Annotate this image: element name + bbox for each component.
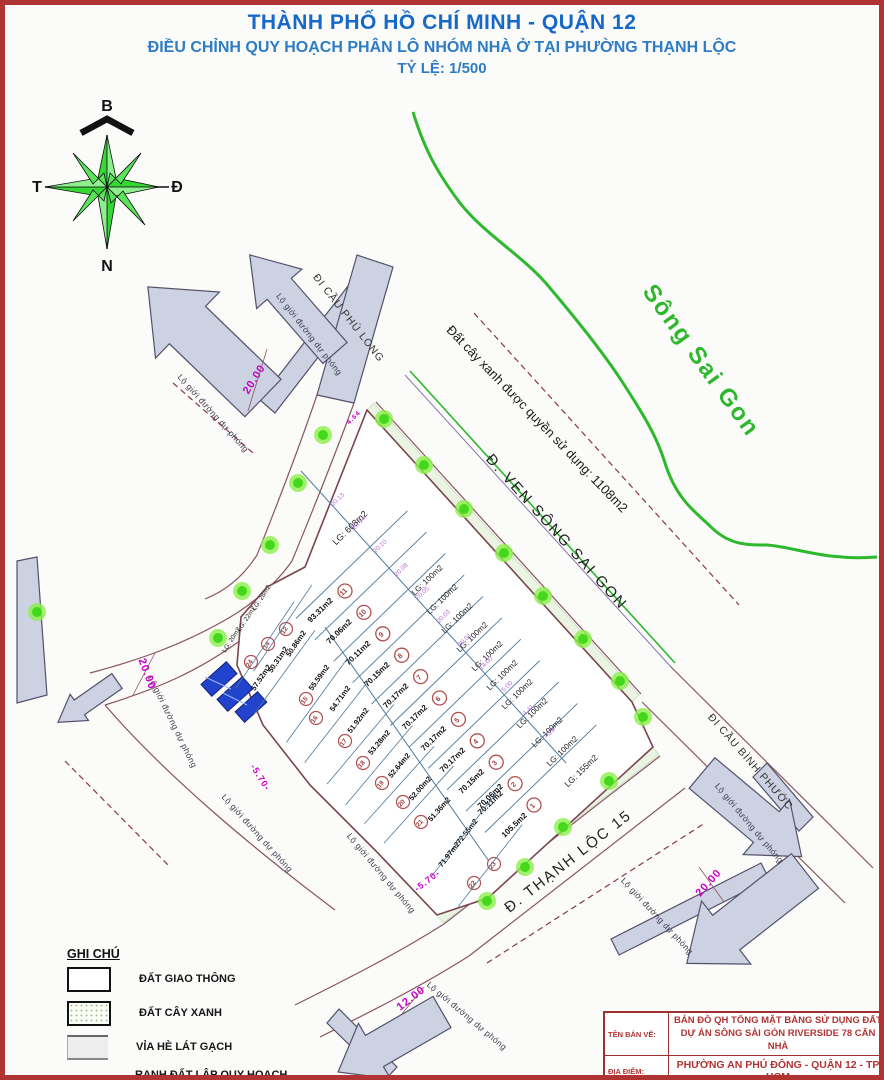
green-land-swatch <box>67 1001 111 1026</box>
compass-east-label: Đ <box>171 179 183 196</box>
tree-icon <box>293 478 303 488</box>
tree-icon <box>538 591 548 601</box>
legend-title: GHI CHÚ <box>67 947 287 961</box>
tree-icon <box>578 634 588 644</box>
legend-item-green: ĐẤT CÂY XANH <box>67 1001 287 1026</box>
title-block-row1: TÊN BẢN VẼ: BẢN ĐỒ QH TỔNG MẶT BẰNG SỬ D… <box>605 1013 884 1056</box>
header: THÀNH PHỐ HỒ CHÍ MINH - QUẬN 12 ĐIỀU CHỈ… <box>5 11 879 77</box>
legend-item-traffic: ĐẤT GIAO THÔNG <box>67 967 287 992</box>
tree-icon <box>520 862 530 872</box>
tree-icon <box>499 548 509 558</box>
sidewalk-swatch <box>67 1035 108 1060</box>
page-subtitle: ĐIỀU CHỈNH QUY HOẠCH PHÂN LÔ NHÓM NHÀ Ở … <box>5 39 879 57</box>
tree-icon <box>379 414 389 424</box>
compass-north-label: B <box>101 98 113 115</box>
tree-icon <box>237 586 247 596</box>
legend: GHI CHÚ ĐẤT GIAO THÔNG ĐẤT CÂY XANH VỈA … <box>67 947 287 1080</box>
tree-icon <box>32 607 42 617</box>
tree-icon <box>459 504 469 514</box>
river-line <box>413 112 877 558</box>
svg-text:-5.70-: -5.70- <box>248 762 272 792</box>
scale-label: TỶ LỆ: 1/500 <box>5 60 879 77</box>
page-title: THÀNH PHỐ HỒ CHÍ MINH - QUẬN 12 <box>5 11 879 35</box>
tree-icon <box>558 822 568 832</box>
plan-sheet: THÀNH PHỐ HỒ CHÍ MINH - QUẬN 12 ĐIỀU CHỈ… <box>0 0 884 1080</box>
tree-icon <box>482 896 492 906</box>
drawing-name-value: BẢN ĐỒ QH TỔNG MẶT BẰNG SỬ DỤNG ĐẤT DỰ Á… <box>669 1013 884 1055</box>
green-area-label: Đất cây xanh được quyền sử dụng: 1108m2 <box>444 322 631 515</box>
tree-icon <box>318 430 328 440</box>
traffic-land-swatch <box>67 967 111 992</box>
ranh-dashed-left2 <box>65 761 170 867</box>
compass-rose: B N T Đ <box>32 98 183 275</box>
legend-item-sidewalk: VỈA HÈ LÁT GẠCH <box>67 1035 287 1060</box>
tree-icon <box>265 540 275 550</box>
plan-map: B N T Đ Sông Sai Gon Đất cây xanh được q… <box>5 5 884 1080</box>
location-value: PHƯỜNG AN PHÚ ĐÔNG - QUẬN 12 - TP HCM <box>669 1056 884 1080</box>
svg-text:Lộ giới đường dự phóng: Lộ giới đường dự phóng <box>220 792 295 874</box>
tree-icon <box>213 633 223 643</box>
river-label: Sông Sai Gon <box>637 279 765 442</box>
tree-icon <box>604 776 614 786</box>
compass-south-label: N <box>101 258 113 275</box>
compass-west-label: T <box>32 179 42 196</box>
legend-item-boundary: RANH ĐẤT LẬP QUY HOẠCH TỔNG MẶT BẰNG <box>67 1069 287 1080</box>
north-chevron-icon <box>81 119 133 133</box>
tree-icon <box>638 712 648 722</box>
road-edge <box>257 395 317 555</box>
location-label: ĐỊA ĐIỂM: <box>605 1056 669 1080</box>
road-band <box>17 557 47 703</box>
title-block: TÊN BẢN VẼ: BẢN ĐỒ QH TỔNG MẶT BẰNG SỬ D… <box>603 1011 884 1080</box>
tree-icon <box>419 460 429 470</box>
drawing-name-label: TÊN BẢN VẼ: <box>605 1013 669 1055</box>
tree-icon <box>615 676 625 686</box>
svg-text:4.64: 4.64 <box>346 410 363 427</box>
title-block-row2: ĐỊA ĐIỂM: PHƯỜNG AN PHÚ ĐÔNG - QUẬN 12 -… <box>605 1056 884 1080</box>
